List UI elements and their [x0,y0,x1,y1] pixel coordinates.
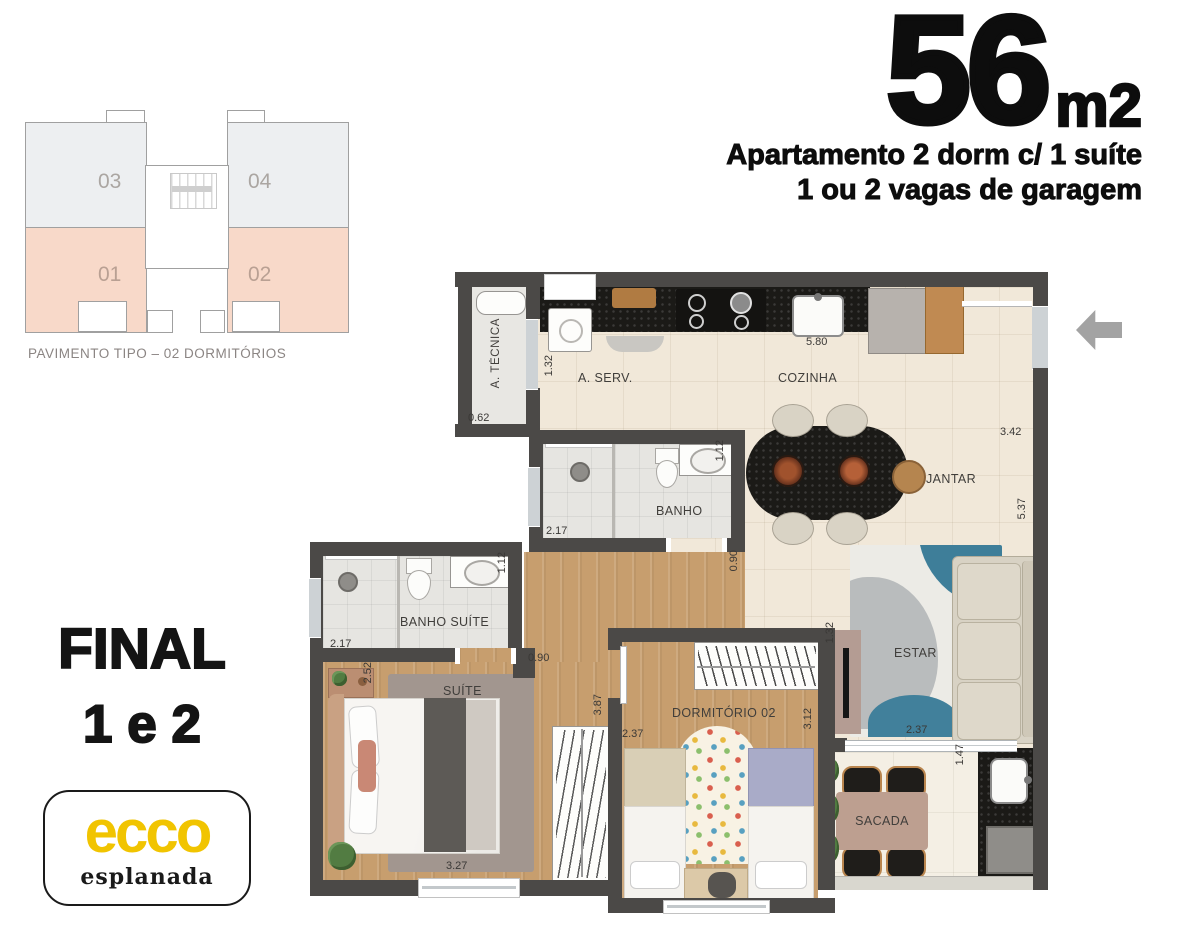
wall [608,628,835,642]
washing-machine-drum [559,319,583,343]
wash-basin [464,560,500,586]
tall-cabinet [868,288,927,354]
sliding-door-track [845,745,1017,746]
water-heater [476,291,526,315]
door-opening [668,538,724,552]
burner-icon [734,315,749,330]
room-label-banho-suite: BANHO SUÍTE [400,615,489,629]
kitchen-sink [792,295,844,337]
single-bed [624,806,686,900]
measurement-dorm2-w: 2.37 [622,728,643,740]
burner-icon [689,314,704,329]
bed-foot-blanket [466,700,496,850]
closet-rod [581,729,583,877]
pillow [630,861,680,889]
room-label-aserv: A. SERV. [578,371,633,385]
single-bed-blanket [748,748,814,808]
dining-chair [826,404,868,437]
door-leaf [620,646,627,704]
single-bed-blanket [624,748,686,808]
tv [843,648,849,718]
wall [529,430,745,444]
desk-chair [708,872,736,898]
window-glass [667,905,766,908]
room-label-jantar: JANTAR [926,472,976,486]
wall [608,698,622,913]
floor-plan: SACADA [0,0,1200,942]
measurement-tv-wall: 1.32 [824,622,836,643]
door-jamb [666,538,671,552]
door-jamb [511,648,516,664]
wall [526,388,540,425]
cooktop [676,289,766,331]
window [418,878,520,898]
dining-chair [826,512,868,545]
room-label-dormitorio02: DORMITÓRIO 02 [672,706,776,720]
wall [1033,272,1048,306]
washing-machine [548,308,592,352]
wall [310,542,522,556]
room-label-sacada: SACADA [855,814,909,828]
window [528,467,540,527]
measurement-banho-pass: 0.90 [728,550,740,571]
faucet-icon [814,293,822,301]
plant [328,842,356,870]
sliding-door [845,740,1017,752]
wall [508,556,522,660]
faucet-icon [1024,776,1032,784]
room-label-atecnica: A. TÉCNICA [490,318,502,388]
measurement-banho-w: 1.12 [714,440,726,461]
window-glass [422,886,516,889]
burner-icon [730,292,752,314]
window [663,900,770,914]
wardrobe [694,642,820,690]
measurement-suite-w: 2.52 [362,662,374,683]
sofa-cushion [957,622,1021,680]
window [309,578,321,638]
bedroom2-rug [676,726,758,864]
entrance-door [1032,306,1048,370]
dinner-plate [838,455,870,487]
dining-chair [772,404,814,437]
pillow [755,861,807,889]
balcony-chair [886,846,926,879]
measurement-bsuite-len: 2.17 [330,638,351,650]
wall [1033,368,1048,890]
door-opening [457,648,513,662]
shower-head-icon [570,462,590,482]
entry-door-swing [962,301,1032,307]
door-jamb [455,648,460,664]
floorplan-page: 56 m2 Apartamento 2 dorm c/ 1 suíte 1 ou… [0,0,1200,942]
measurement-hall-w: 0.90 [528,652,549,664]
room-label-cozinha: COZINHA [778,371,837,385]
wood-cabinet [925,284,964,354]
window [544,274,596,300]
shower-divider [397,556,400,648]
cutting-board [612,288,656,308]
measurement-sacada-w: 1.47 [954,744,966,765]
measurement-suite-len: 3.27 [446,860,467,872]
balcony-sink [990,758,1028,804]
dining-chair [772,512,814,545]
sofa-cushion [957,563,1021,620]
dish-rack [606,336,664,352]
bed-headboard [328,694,344,856]
sofa [952,556,1046,744]
dining-island [746,426,908,520]
sofa-cushion [957,682,1021,740]
measurement-hall-len: 3.87 [592,694,604,715]
wardrobe-rod [697,666,815,668]
room-label-banho: BANHO [656,504,702,518]
room-label-suite: SUÍTE [443,684,482,698]
measurement-atecnica: 0.62 [468,412,489,424]
measurement-living-len: 5.37 [1016,498,1028,519]
balcony-chair [842,846,882,879]
island-stool [892,460,926,494]
measurement-aserv: 1.32 [543,355,555,376]
wall [455,424,540,437]
dinner-plate [772,455,804,487]
measurement-cozinha-w: 3.42 [1000,426,1021,438]
plant [332,671,347,686]
balcony-ledge [833,876,1048,890]
wall [529,538,668,552]
single-bed [748,806,814,900]
measurement-banho-len: 2.17 [546,525,567,537]
hall-vestibule-floor [524,552,745,628]
measurement-cozinha-len: 5.80 [806,336,827,348]
wall [526,287,540,319]
accent-pillow [358,740,376,792]
measurement-bsuite-w: 1.12 [496,552,508,573]
room-label-estar: ESTAR [894,646,937,660]
burner-icon [688,294,706,312]
measurement-estar-w: 2.37 [906,724,927,736]
hall-closet [552,726,610,882]
door-jamb [722,538,727,552]
grill-mat [986,826,1036,874]
technical-area-door [526,319,538,390]
balcony-table: SACADA [836,792,928,850]
shower-divider [612,444,615,538]
bed-runner [424,698,466,852]
wall [310,648,457,662]
wall [731,444,745,552]
shower-head-icon [338,572,358,592]
wall [818,628,835,890]
measurement-dorm2-len: 3.12 [802,708,814,729]
